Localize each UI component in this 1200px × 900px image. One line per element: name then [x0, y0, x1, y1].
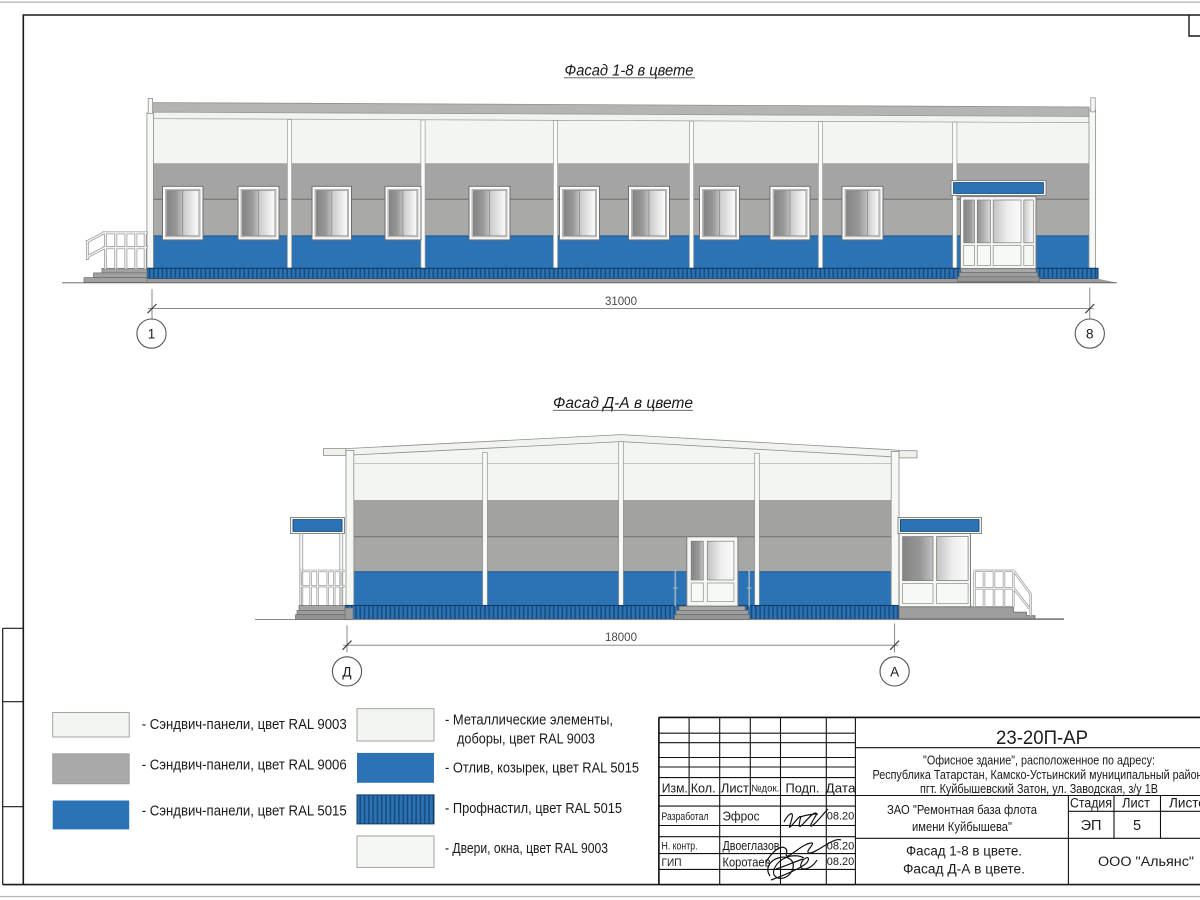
svg-text:Стадия: Стадия	[1070, 796, 1112, 811]
svg-text:доборы, цвет RAL 9003: доборы, цвет RAL 9003	[457, 730, 595, 747]
svg-text:- Профнастил, цвет RAL 5015: - Профнастил, цвет RAL 5015	[445, 800, 622, 817]
svg-text:Коротаев: Коротаев	[723, 854, 771, 869]
svg-text:Республика Татарстан, Камско-У: Республика Татарстан, Камско-Устьинский …	[873, 768, 1200, 782]
svg-text:ООО "Альянс": ООО "Альянс"	[1098, 854, 1194, 870]
svg-text:Фасад Д-А в цвете: Фасад Д-А в цвете	[553, 395, 693, 412]
svg-text:Лист: Лист	[721, 780, 749, 795]
svg-text:№док.: №док.	[751, 783, 779, 794]
svg-text:- Двери, окна, цвет RAL 9003: - Двери, окна, цвет RAL 9003	[445, 840, 608, 857]
svg-text:31000: 31000	[605, 296, 637, 308]
svg-text:- Сэндвич-панели, цвет RAL 900: - Сэндвич-панели, цвет RAL 9006	[142, 756, 347, 773]
svg-text:Эфрос: Эфрос	[723, 808, 760, 823]
svg-text:Лист: Лист	[1122, 796, 1150, 811]
svg-text:пгт. Куйбышевский Затон, ул. З: пгт. Куйбышевский Затон, ул. Заводская, …	[920, 782, 1158, 796]
svg-text:Подп.: Подп.	[786, 780, 820, 795]
svg-text:Д: Д	[342, 664, 351, 679]
svg-text:Изм.: Изм.	[662, 780, 688, 795]
svg-text:ЭП: ЭП	[1081, 818, 1102, 834]
svg-text:08.20: 08.20	[827, 856, 855, 868]
svg-text:имени Куйбышева": имени Куйбышева"	[912, 819, 1012, 834]
svg-text:18000: 18000	[605, 632, 637, 644]
svg-text:Н. контр.: Н. контр.	[662, 841, 698, 853]
svg-text:А: А	[890, 664, 899, 679]
svg-text:23-20П-АР: 23-20П-АР	[996, 728, 1088, 749]
svg-text:08.20: 08.20	[827, 811, 855, 823]
svg-text:- Металлические элементы,: - Металлические элементы,	[445, 711, 613, 728]
svg-text:ЗАО "Ремонтная база флота: ЗАО "Ремонтная база флота	[887, 802, 1038, 817]
svg-text:- Сэндвич-панели, цвет RAL 501: - Сэндвич-панели, цвет RAL 5015	[142, 802, 347, 819]
svg-text:- Отлив, козырек, цвет RAL 501: - Отлив, козырек, цвет RAL 5015	[445, 759, 639, 776]
svg-text:Фасад Д-А в цвете.: Фасад Д-А в цвете.	[903, 862, 1025, 878]
svg-text:Фасад 1-8 в цвете: Фасад 1-8 в цвете	[565, 63, 694, 80]
svg-text:ГИП: ГИП	[662, 857, 682, 869]
svg-text:8: 8	[1086, 327, 1094, 342]
svg-text:Кол.: Кол.	[691, 780, 716, 795]
svg-text:Фасад 1-8 в цвете.: Фасад 1-8 в цвете.	[906, 843, 1022, 859]
svg-text:- Сэндвич-панели, цвет RAL 900: - Сэндвич-панели, цвет RAL 9003	[142, 716, 347, 733]
svg-text:1: 1	[148, 327, 156, 342]
svg-text:Листов: Листов	[1169, 796, 1200, 811]
svg-text:Дата: Дата	[826, 780, 857, 795]
svg-text:5: 5	[1133, 818, 1141, 834]
svg-text:Двоеглазов: Двоеглазов	[723, 838, 780, 853]
svg-text:"Офисное здание", расположенно: "Офисное здание", расположенное по адрес…	[923, 754, 1155, 768]
svg-text:Разработал: Разработал	[662, 811, 709, 823]
